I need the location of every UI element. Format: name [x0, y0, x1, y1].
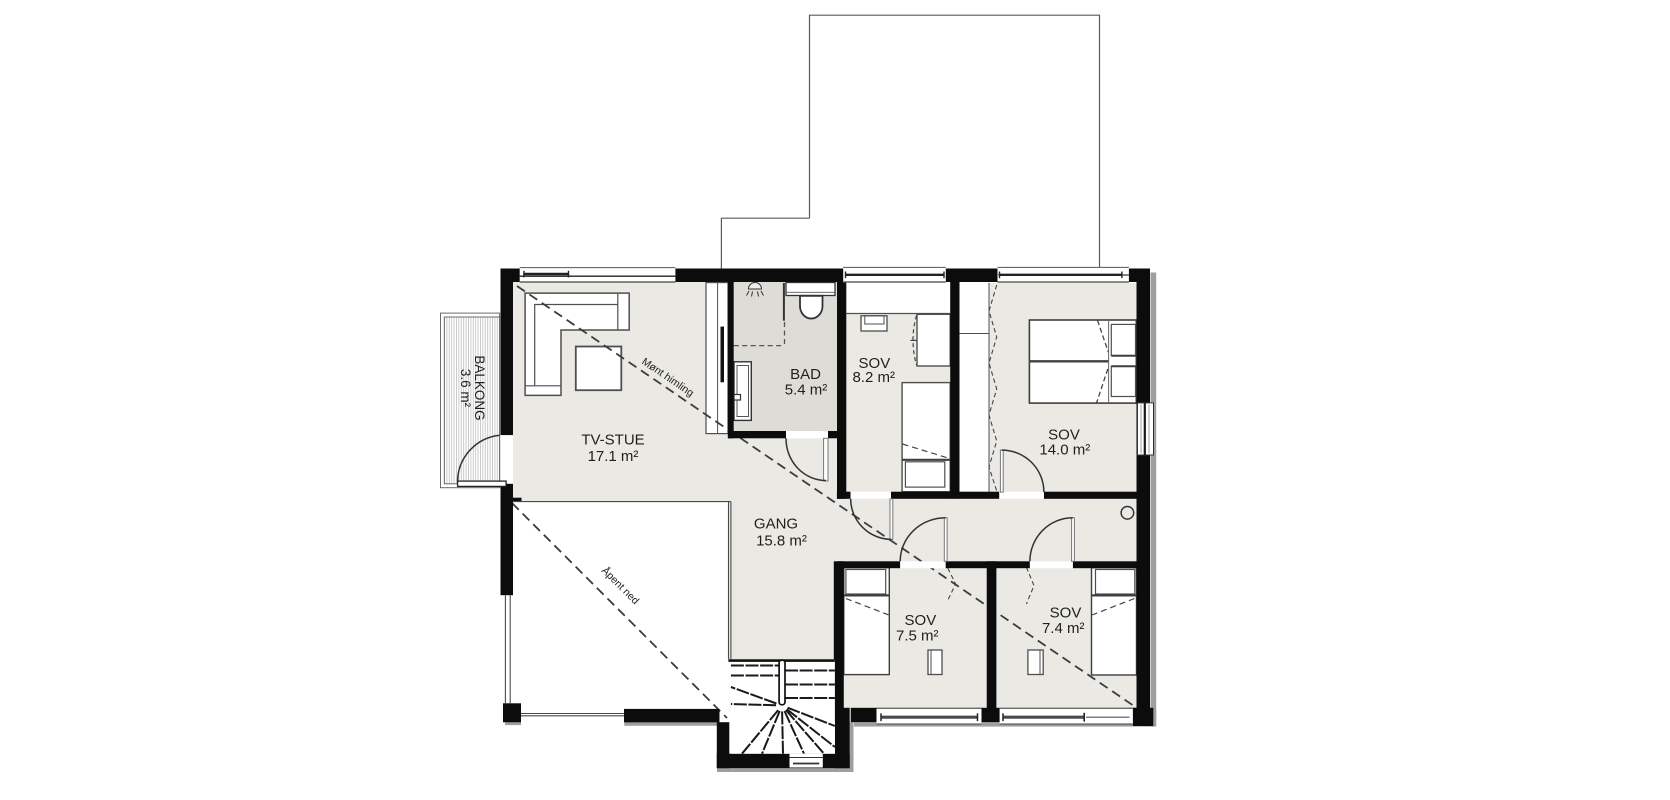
svg-text:TV-STUE: TV-STUE	[581, 432, 644, 449]
svg-text:17.1 m²: 17.1 m²	[588, 448, 639, 465]
svg-text:BAD: BAD	[790, 366, 821, 383]
svg-text:BALKONG: BALKONG	[472, 355, 487, 420]
svg-text:5.4 m²: 5.4 m²	[785, 382, 828, 399]
svg-text:Åpent ned: Åpent ned	[599, 564, 642, 607]
svg-text:7.4 m²: 7.4 m²	[1042, 620, 1085, 637]
svg-text:GANG: GANG	[754, 516, 798, 533]
svg-text:8.2 m²: 8.2 m²	[852, 369, 895, 386]
svg-text:SOV: SOV	[905, 612, 937, 629]
svg-text:7.5 m²: 7.5 m²	[896, 628, 939, 645]
svg-text:3.6 m²: 3.6 m²	[458, 369, 473, 408]
svg-text:15.8 m²: 15.8 m²	[756, 533, 807, 550]
svg-text:SOV: SOV	[1050, 605, 1082, 622]
svg-text:14.0 m²: 14.0 m²	[1039, 442, 1090, 459]
